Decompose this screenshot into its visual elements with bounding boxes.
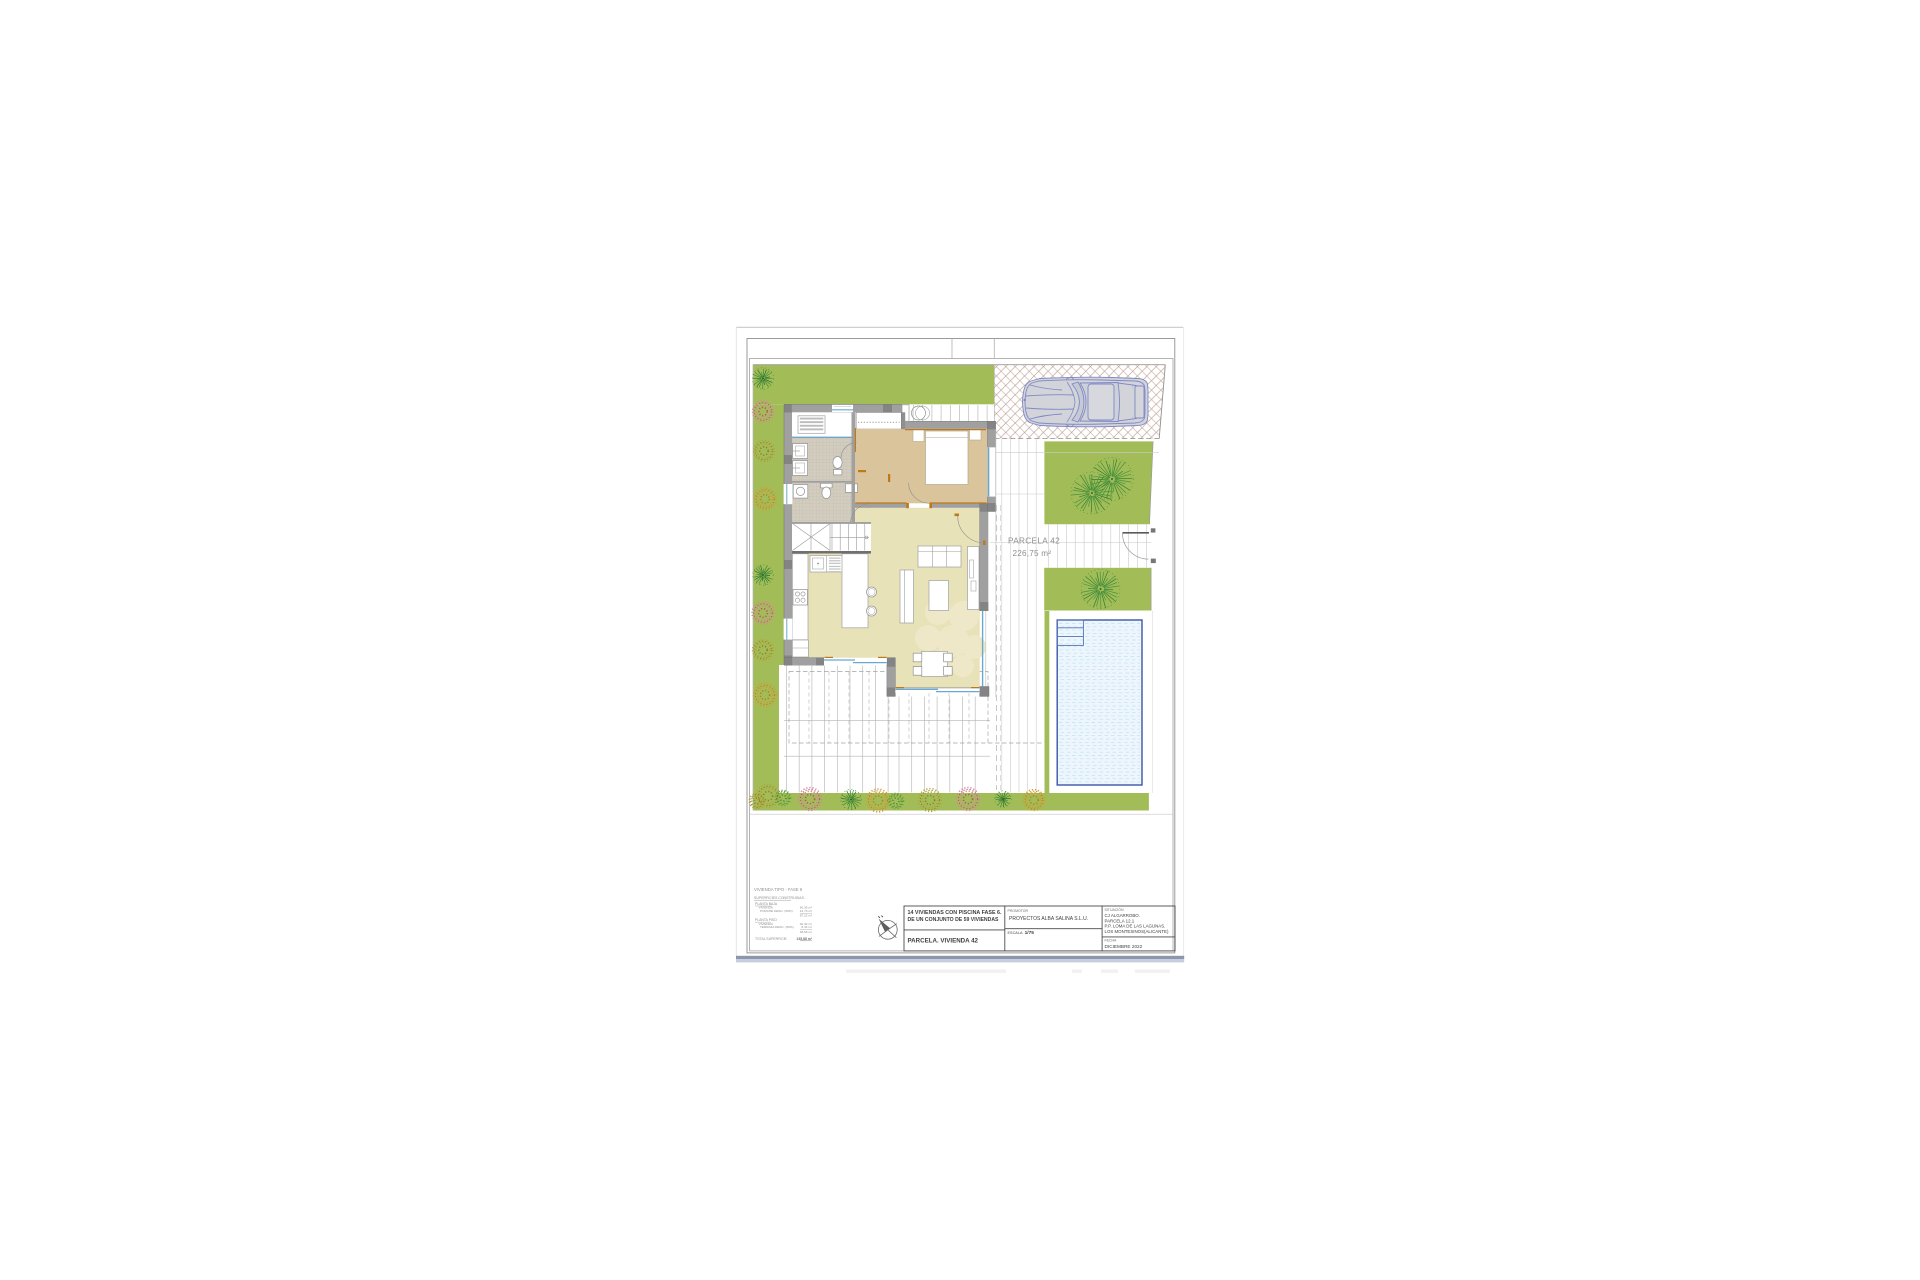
svg-text:226,75 m²: 226,75 m²: [1013, 549, 1052, 558]
svg-text:LOS MONTESINOS(ALICANTE): LOS MONTESINOS(ALICANTE): [1105, 929, 1169, 934]
svg-text:87,22 m²: 87,22 m²: [800, 914, 812, 918]
svg-text:SITUACIÓN: SITUACIÓN: [1105, 907, 1125, 912]
svg-text:135,88 m²: 135,88 m²: [797, 937, 813, 941]
svg-text:PROYECTOS ALBA SALINA S.L.U.: PROYECTOS ALBA SALINA S.L.U.: [1009, 916, 1088, 922]
svg-text:VIVIENDA TIPO - FASE 6: VIVIENDA TIPO - FASE 6: [754, 887, 803, 892]
svg-text:8,34 m²: 8,34 m²: [802, 925, 813, 929]
svg-text:PARCELA 12.1: PARCELA 12.1: [1105, 918, 1135, 923]
svg-text:TERRAZA DESC. (50%): TERRAZA DESC. (50%): [760, 925, 794, 929]
svg-text:DE UN CONJUNTO DE 59 VIVIENDAS: DE UN CONJUNTO DE 59 VIVIENDAS: [908, 917, 999, 923]
svg-text:PORCHE DESC. (50%): PORCHE DESC. (50%): [760, 909, 793, 913]
svg-text:PROMOTOR: PROMOTOR: [1008, 909, 1029, 913]
svg-text:DICIEMBRE 2022: DICIEMBRE 2022: [1105, 944, 1143, 949]
svg-text:14 VIVIENDAS CON PISCINA FASE: 14 VIVIENDAS CON PISCINA FASE 6.: [908, 910, 1002, 916]
svg-text:TOTAL SUPERFICIE: TOTAL SUPERFICIE: [755, 937, 788, 941]
svg-text:13,73 m²: 13,73 m²: [800, 909, 812, 913]
svg-text:P.P. LOMA DE LAS LAGUNAS.: P.P. LOMA DE LAS LAGUNAS.: [1105, 924, 1166, 929]
svg-text:FECHA: FECHA: [1105, 939, 1118, 943]
svg-text:PARCELA 42: PARCELA 42: [1008, 537, 1060, 546]
svg-text:CJ ALGARROBO.: CJ ALGARROBO.: [1105, 913, 1140, 918]
svg-text:PARCELA. VIVIENDA 42: PARCELA. VIVIENDA 42: [908, 938, 979, 945]
svg-text:SUPERFICIES CONSTRUIDAS:: SUPERFICIES CONSTRUIDAS:: [754, 896, 805, 900]
svg-text:48,66 m²: 48,66 m²: [800, 930, 812, 934]
